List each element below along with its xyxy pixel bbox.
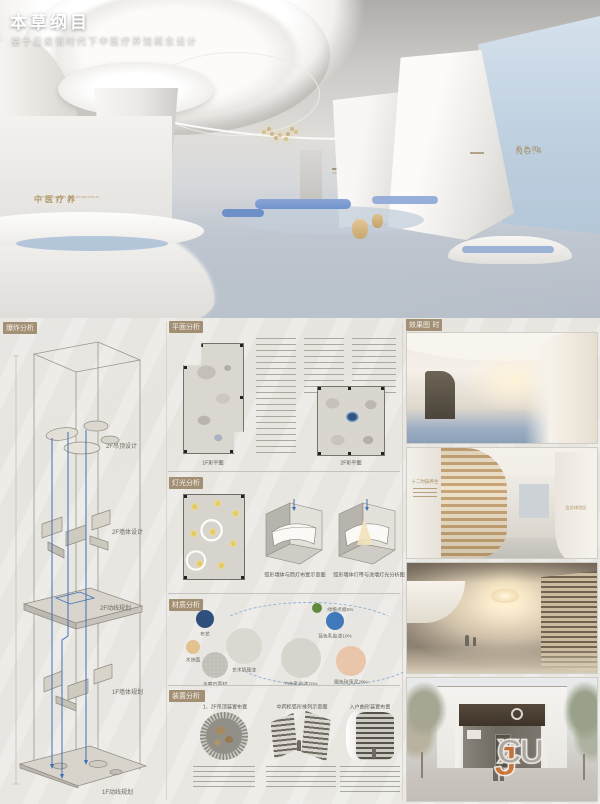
lighting-plan bbox=[183, 494, 245, 580]
reception-sign-subtext: Herb Regimen and Acupuncture bbox=[39, 194, 99, 198]
material-item: 木饰面 bbox=[186, 640, 200, 654]
render2-left-wall bbox=[407, 448, 443, 558]
panel-divider-vertical-2 bbox=[402, 322, 403, 800]
column-marker bbox=[240, 344, 243, 347]
section-divider bbox=[168, 593, 400, 596]
render2-wall-text-right: 会员体验区 bbox=[560, 505, 592, 511]
poster-title: 本草纲目 bbox=[10, 8, 90, 33]
device-description-text-block bbox=[266, 766, 336, 790]
watermark-part-3: C bbox=[497, 733, 522, 772]
section-title-badge: 装置分析 bbox=[169, 690, 203, 702]
hero-interior-render: 养生阁 NO.4 中医疗养 Herb Regimen and Acupunctu… bbox=[0, 0, 600, 318]
floor-rug bbox=[238, 206, 424, 234]
device-description-text-block bbox=[193, 766, 255, 790]
render-thumbnail-2: 十二时辰养生 会员体验区 bbox=[406, 447, 598, 559]
render-thumbnail-3 bbox=[406, 562, 598, 674]
exploded-axonometric-diagram bbox=[4, 336, 162, 788]
render2-wall-text-lines bbox=[413, 488, 437, 500]
section-title-badge: 效果图 bbox=[406, 319, 433, 331]
plan-caption-2f: 2F彩平图 bbox=[321, 459, 381, 467]
material-swatch bbox=[186, 640, 200, 654]
device-caption-2: 中药柜弧形排列示意图 bbox=[268, 703, 336, 711]
render2-wall-text: 十二时辰养生 bbox=[411, 478, 440, 484]
explode-label-5: 1F动线规划 bbox=[102, 787, 133, 796]
section-divider bbox=[168, 685, 400, 688]
ceiling-device-disc-diagram bbox=[200, 712, 248, 760]
section-title-badge: 爆炸分析 bbox=[3, 322, 37, 334]
render4-circle-logo bbox=[511, 708, 523, 720]
material-swatch bbox=[312, 603, 322, 613]
light-axon-sketch-2 bbox=[333, 498, 401, 566]
material-swatch bbox=[196, 610, 214, 628]
material-swatch bbox=[226, 628, 262, 664]
device-caption-1: 1、2F吊顶装置布置 bbox=[195, 703, 255, 711]
column-marker bbox=[318, 387, 321, 390]
scale-figure bbox=[297, 740, 301, 751]
column-marker bbox=[240, 396, 243, 399]
render3-floor bbox=[407, 647, 597, 673]
device-description-text-block bbox=[340, 766, 400, 794]
scale-figure bbox=[372, 748, 376, 758]
render2-mirror bbox=[519, 484, 549, 518]
explode-label-1: 2F吊顶设计 bbox=[106, 441, 137, 450]
light-axon-sketch-1 bbox=[260, 498, 328, 566]
material-swatch bbox=[326, 612, 344, 630]
column-marker bbox=[241, 576, 244, 579]
plan-caption-1f: 1F彩平图 bbox=[183, 459, 243, 467]
render3-figure bbox=[473, 637, 476, 646]
material-item: 绿植点缀5% bbox=[312, 603, 322, 613]
area-number: NO.4 bbox=[516, 145, 544, 156]
material-item: 水磨石面材 bbox=[202, 652, 228, 678]
section-divider bbox=[168, 471, 400, 474]
column-marker bbox=[241, 495, 244, 498]
column-marker bbox=[184, 495, 187, 498]
render-thumbnail-1 bbox=[406, 332, 598, 444]
column-marker bbox=[318, 452, 321, 455]
render4-fascia-sign-band bbox=[459, 704, 545, 726]
material-label: 布艺 bbox=[200, 630, 210, 637]
column-marker bbox=[348, 452, 351, 455]
light-caption-1: 弧形墙体与筒灯布置示意图 bbox=[258, 571, 331, 579]
floor-plan-1f bbox=[183, 343, 244, 454]
render3-pendant-lamp bbox=[491, 589, 519, 603]
disc-inner-plan bbox=[206, 718, 242, 754]
column-marker bbox=[348, 387, 351, 390]
poster-board: 养生阁 NO.4 中医疗养 Herb Regimen and Acupunctu… bbox=[0, 0, 600, 804]
plan-legend-column-1 bbox=[256, 338, 296, 454]
material-label: 木饰面 bbox=[186, 656, 200, 663]
material-label: 蓝色乳胶漆10% bbox=[318, 632, 352, 639]
blue-bench-3 bbox=[222, 209, 264, 217]
explode-label-4: 1F墙体规划 bbox=[112, 687, 143, 696]
material-item: 暖色硅藻泥20% bbox=[336, 646, 366, 676]
floor-plan-2f bbox=[317, 386, 385, 456]
render2-slat-shading bbox=[441, 448, 507, 558]
material-swatch bbox=[281, 638, 321, 678]
column-marker bbox=[381, 387, 384, 390]
column-marker bbox=[381, 452, 384, 455]
column-marker bbox=[184, 366, 187, 369]
sofa-cushion bbox=[462, 246, 554, 253]
explode-label-2: 2F墙体设计 bbox=[112, 527, 143, 536]
poster-subtitle: 基于后疫情时代下中医疗养馆概念设计 bbox=[11, 34, 198, 47]
render4-small-sign bbox=[467, 730, 481, 739]
blue-bench-1 bbox=[255, 199, 351, 209]
material-item: 白色乳胶漆70% bbox=[281, 638, 321, 678]
light-caption-2: 弧形墙体灯带与洗墙灯光分析图 bbox=[332, 571, 405, 579]
column-marker bbox=[184, 450, 187, 453]
material-swatch bbox=[336, 646, 366, 676]
material-item: 蓝色乳胶漆10% bbox=[326, 612, 344, 630]
column-marker bbox=[200, 344, 203, 347]
material-item: 艺术肌理漆 bbox=[226, 628, 262, 664]
reception-desk-accent bbox=[16, 236, 168, 251]
material-item: 布艺 bbox=[196, 610, 214, 628]
section-title-badge: 平面分析 bbox=[169, 321, 203, 333]
device-caption-3: 入户曲形装置布置 bbox=[339, 703, 400, 711]
explode-label-3: 2F动线规划 bbox=[100, 603, 131, 612]
column-marker bbox=[184, 576, 187, 579]
wood-stool-2 bbox=[372, 214, 383, 228]
render4-tree-trunk bbox=[583, 754, 585, 780]
material-label: 艺术肌理漆 bbox=[232, 666, 256, 673]
render4-tree-trunk bbox=[421, 752, 423, 778]
blue-bench-2 bbox=[372, 196, 438, 204]
herb-cabinet-arc-wall-2 bbox=[301, 711, 332, 761]
wood-stool-1 bbox=[352, 219, 368, 239]
chandelier bbox=[262, 130, 266, 134]
render1-doorway bbox=[425, 371, 455, 419]
partition-text-mark bbox=[470, 152, 484, 154]
render3-figure bbox=[465, 635, 469, 646]
herb-cabinet-arc-wall-1 bbox=[270, 713, 298, 759]
column-marker bbox=[230, 450, 233, 453]
material-swatch bbox=[202, 652, 228, 678]
section-title-badge: 灯光分析 bbox=[169, 477, 203, 489]
panel-divider-vertical-1 bbox=[166, 322, 167, 800]
